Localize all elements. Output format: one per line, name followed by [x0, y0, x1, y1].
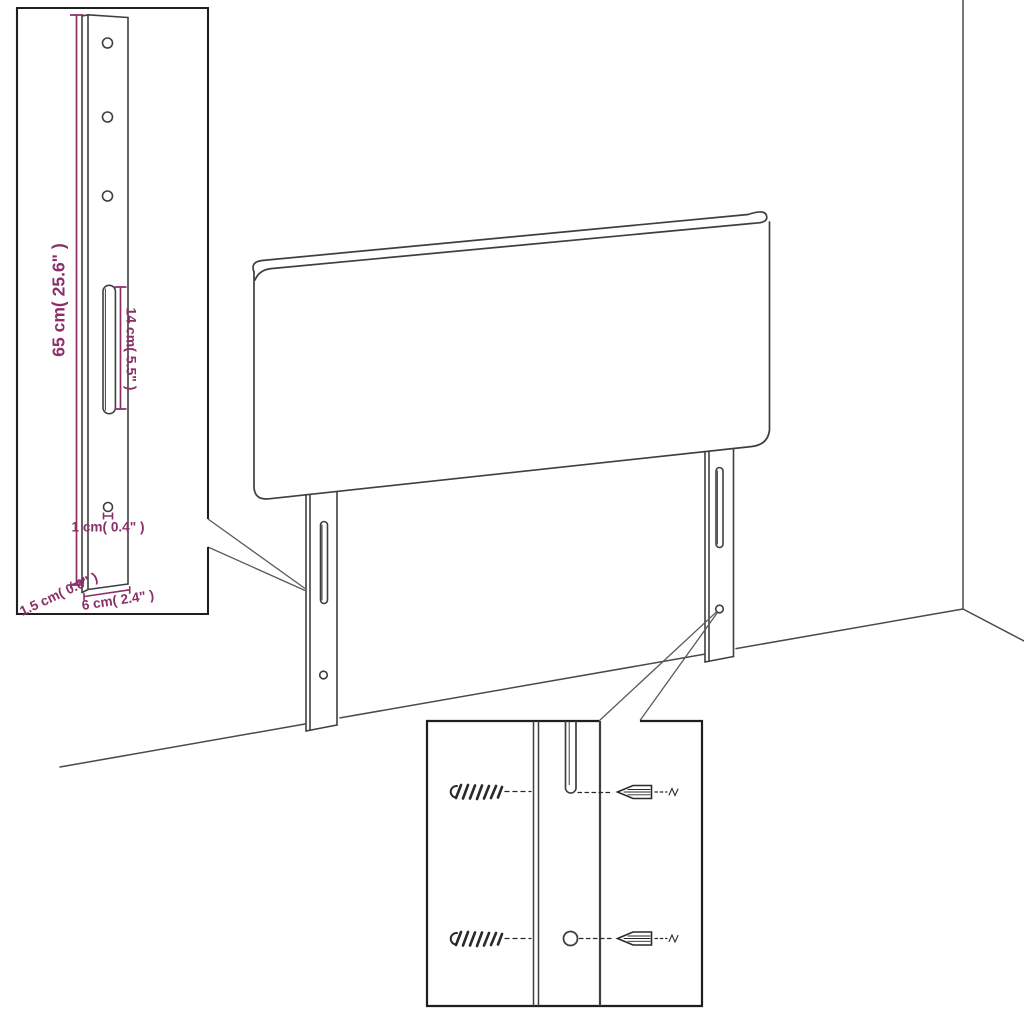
bracket-hole-2	[103, 112, 113, 122]
leg-strip-magnified	[534, 721, 601, 1006]
leg-strip-hole	[564, 932, 578, 946]
diagram-canvas: 65 cm( 25.6" ) 14 cm( 5.5" ) 1 cm( 0.4" …	[0, 0, 1024, 1024]
dimension-hole-label: 1 cm( 0.4" )	[72, 520, 145, 535]
dimension-hole-bracket	[104, 513, 113, 520]
dimension-slot-length: 14 cm( 5.5" )	[115, 287, 140, 409]
machine-screw-top-end-squiggle	[669, 789, 678, 796]
floor-edge-right	[963, 609, 1024, 641]
dimension-bracket-width: 6 cm( 2.4" )	[81, 586, 155, 613]
headboard-panel	[253, 212, 770, 499]
callout-lines	[208, 519, 717, 721]
lag-screw-top	[451, 785, 531, 799]
floor-edge-left-3	[60, 724, 305, 767]
machine-screw-bottom-end-squiggle	[669, 935, 678, 942]
bracket-hole-1	[103, 38, 113, 48]
bracket-bottom-hole	[104, 503, 113, 512]
floor-edge-left-1	[736, 609, 963, 649]
screw-detail-inset	[427, 721, 702, 1006]
dimension-bracket-height: 65 cm( 25.6" )	[49, 15, 84, 585]
lag-screw-bottom	[451, 932, 531, 946]
machine-screw-bottom	[580, 932, 679, 945]
machine-screw-bottom-hatch	[624, 936, 650, 941]
screw-inset-border	[427, 721, 702, 1006]
screw-inset-leader-right	[640, 613, 717, 721]
right-leg-hole	[716, 605, 724, 613]
machine-screw-top	[578, 786, 678, 799]
dimension-bracket-height-label: 65 cm( 25.6" )	[49, 243, 69, 356]
bracket-top-edge	[82, 15, 128, 18]
lag-screw-top-threads	[456, 785, 502, 799]
dimension-slot-length-label: 14 cm( 5.5" )	[123, 308, 139, 391]
leg-strip-slot	[566, 721, 577, 793]
bracket-hole-3	[103, 191, 113, 201]
screw-inset-leader-left	[599, 612, 717, 721]
lag-screw-bottom-threads	[456, 932, 502, 946]
wall-corner	[60, 0, 1024, 767]
machine-screw-top-hatch	[624, 790, 650, 795]
bracket-detail-inset: 65 cm( 25.6" ) 14 cm( 5.5" ) 1 cm( 0.4" …	[17, 8, 208, 619]
left-leg-hole	[320, 671, 328, 679]
headboard-top-edge-inner	[255, 224, 750, 280]
right-leg	[705, 449, 734, 663]
headboard-dimension-diagram: 65 cm( 25.6" ) 14 cm( 5.5" ) 1 cm( 0.4" …	[0, 0, 1024, 1024]
bracket-slot	[103, 285, 115, 413]
left-leg	[306, 492, 337, 732]
